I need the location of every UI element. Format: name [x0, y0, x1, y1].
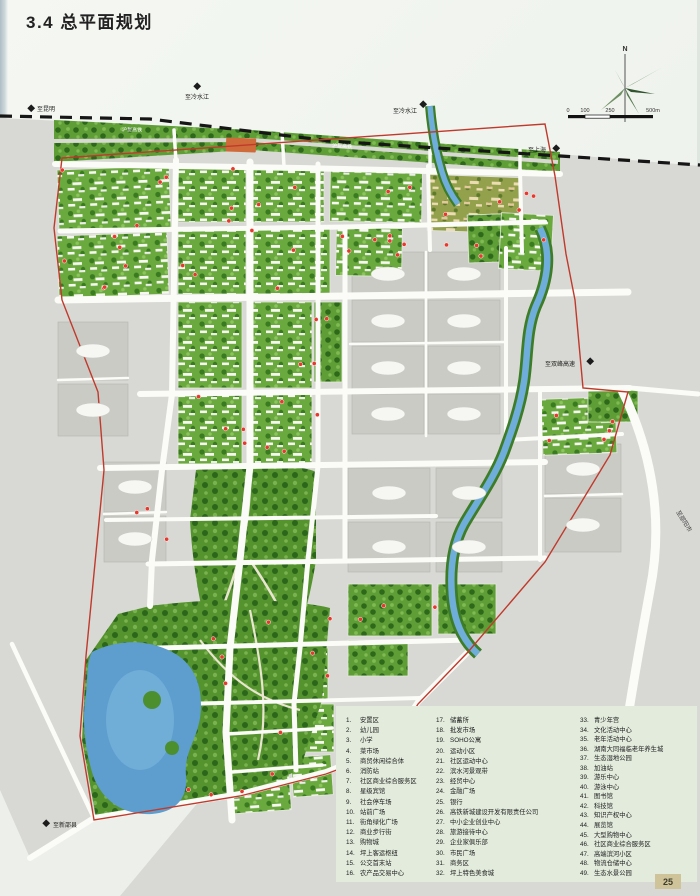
legend-item-number: 28.: [436, 828, 450, 838]
parcel-badge: [371, 361, 405, 375]
legend-item-label: 市民广场: [450, 849, 475, 859]
legend-item: 22.滨水河景观带: [436, 767, 538, 777]
legend-item-label: 高铁新城建设开发有限责任公司: [450, 808, 538, 818]
landmark-dot: [270, 772, 274, 776]
road: [282, 132, 284, 166]
legend-item-number: 15.: [346, 859, 360, 869]
legend-item-number: 12.: [346, 828, 360, 838]
legend-item-number: 13.: [346, 838, 360, 848]
legend-item-label: 老年活动中心: [594, 735, 632, 745]
scale-tick: 250: [605, 108, 614, 114]
scale-tick: 0: [566, 108, 569, 114]
railway-name-label: 沪昆高铁: [332, 142, 352, 150]
parcel-badge: [76, 344, 110, 358]
legend-item-number: 17.: [436, 716, 450, 726]
landmark-dot: [524, 191, 528, 195]
landmark-dot: [395, 253, 399, 257]
legend-item-label: 街角绿化广场: [360, 818, 398, 828]
legend-item-label: 高端滨河小区: [594, 850, 632, 860]
landmark-dot: [193, 272, 197, 276]
legend-item: 10.站前广场: [346, 808, 417, 818]
legend-item-label: 经贸中心: [450, 777, 475, 787]
legend-item-number: 9.: [346, 798, 360, 808]
residential-block: [248, 302, 312, 388]
legend-item: 45.大型购物中心: [580, 831, 663, 841]
legend-item-label: 储蓄所: [450, 716, 469, 726]
legend-item-label: 菜市场: [360, 747, 379, 757]
legend-item-number: 20.: [436, 747, 450, 757]
legend-item-number: 26.: [436, 808, 450, 818]
landmark-dot: [266, 620, 270, 624]
legend-item-label: 企业家俱乐部: [450, 838, 488, 848]
parcel-badge: [447, 407, 481, 421]
legend-item-number: 8.: [346, 787, 360, 797]
green-space-block: [348, 584, 432, 636]
legend-item: 33.青少年宫: [580, 716, 663, 726]
legend-item-label: 文化活动中心: [594, 726, 632, 736]
legend-item-number: 1.: [346, 716, 360, 726]
legend-item-number: 10.: [346, 808, 360, 818]
legend-item-label: 生态水景公园: [594, 869, 632, 879]
road: [428, 166, 430, 250]
scale-tick: 100: [580, 108, 589, 114]
legend-item-label: 加油站: [594, 764, 613, 774]
landmark-dot: [209, 793, 213, 797]
legend-item: 13.购物城: [346, 838, 417, 848]
legend-panel: 1.安置区2.幼儿园3.小学4.菜市场5.商贸休闲综合体6.消防站7.社区商业综…: [336, 706, 697, 882]
legend-item: 40.游泳中心: [580, 783, 663, 793]
document-page: 3.4 总平面规划: [0, 0, 700, 896]
residential-block: [330, 169, 423, 223]
legend-item-number: 23.: [436, 777, 450, 787]
residential-block: [252, 166, 324, 222]
parcel-badge: [452, 540, 486, 554]
legend-item-number: 40.: [580, 783, 594, 793]
legend-item-label: 批发市场: [450, 726, 475, 736]
legend-item: 38.加油站: [580, 764, 663, 774]
legend-item: 37.生态湿地公园: [580, 754, 663, 764]
landmark-dot: [293, 185, 297, 189]
landmark-dot: [554, 413, 558, 417]
landmark-dot: [388, 234, 392, 238]
landmark-dot: [186, 788, 190, 792]
landmark-dot: [443, 212, 447, 216]
parcel-badge: [372, 486, 406, 500]
legend-item: 11.街角绿化广场: [346, 818, 417, 828]
legend-item-label: 幼儿园: [360, 726, 379, 736]
legend-item-number: 48.: [580, 859, 594, 869]
landmark-dot: [314, 317, 318, 321]
landmark-dot: [265, 445, 269, 449]
legend-item-number: 45.: [580, 831, 594, 841]
legend-item-label: 农产品交易中心: [360, 869, 404, 879]
diamond-marker: [552, 144, 560, 152]
landmark-dot: [382, 604, 386, 608]
residential-block: [178, 166, 246, 222]
landmark-dot: [373, 238, 377, 242]
legend-item-number: 3.: [346, 736, 360, 746]
legend-item-number: 43.: [580, 811, 594, 821]
landmark-dot: [62, 259, 66, 263]
legend-item-label: 商务区: [450, 859, 469, 869]
to-xinshao-county-label: 至新邵县: [53, 821, 77, 829]
legend-item: 18.批发市场: [436, 726, 538, 736]
legend-item-label: 小学: [360, 736, 373, 746]
page-number: 25: [655, 874, 681, 889]
legend-item-number: 42.: [580, 802, 594, 812]
landmark-dot: [358, 617, 362, 621]
legend-item-label: 游乐中心: [594, 773, 619, 783]
legend-column-1: 1.安置区2.幼儿园3.小学4.菜市场5.商贸休闲综合体6.消防站7.社区商业综…: [346, 716, 417, 879]
landmark-dot: [164, 175, 168, 179]
legend-item: 30.市民广场: [436, 849, 538, 859]
landmark-dot: [196, 395, 200, 399]
legend-item-label: 展览馆: [594, 821, 613, 831]
legend-item: 47.高端滨河小区: [580, 850, 663, 860]
landmark-dot: [229, 206, 233, 210]
scale-tick: 500m: [646, 108, 660, 114]
landmark-dot: [542, 238, 546, 242]
landmark-dot: [547, 438, 551, 442]
legend-item: 31.商务区: [436, 859, 538, 869]
legend-item-label: 金融广场: [450, 787, 475, 797]
legend-item-number: 25.: [436, 798, 450, 808]
legend-item-label: 科技馆: [594, 802, 613, 812]
legend-item: 16.农产品交易中心: [346, 869, 417, 879]
landmark-dot: [310, 651, 314, 655]
to-lengshuijiang-label: 至冷水江: [393, 107, 417, 115]
lake-island: [143, 691, 161, 709]
landmark-dot: [325, 674, 329, 678]
legend-item-label: 生态湿地公园: [594, 754, 632, 764]
scale-bar: 0 100 250 500m: [566, 108, 660, 118]
legend-item-number: 29.: [436, 838, 450, 848]
landmark-dot: [298, 362, 302, 366]
legend-item: 23.经贸中心: [436, 777, 538, 787]
legend-item-label: 中小企业创业中心: [450, 818, 500, 828]
legend-item-number: 32.: [436, 869, 450, 879]
legend-item-label: 游泳中心: [594, 783, 619, 793]
legend-item: 46.社区商业综合服务区: [580, 840, 663, 850]
legend-item: 3.小学: [346, 736, 417, 746]
lake-highlight: [106, 670, 174, 770]
landmark-dot: [278, 730, 282, 734]
legend-item-number: 41.: [580, 792, 594, 802]
legend-item: 25.银行: [436, 798, 538, 808]
parcel-badge: [447, 267, 481, 281]
legend-item-number: 34.: [580, 726, 594, 736]
legend-item: 21.社区运动中心: [436, 757, 538, 767]
landmark-dot: [181, 263, 185, 267]
legend-item-number: 36.: [580, 745, 594, 755]
legend-item-number: 6.: [346, 767, 360, 777]
landmark-dot: [610, 419, 614, 423]
legend-item-label: 消防站: [360, 767, 379, 777]
to-kunming-label: 至昆明: [37, 106, 55, 113]
landmark-dot: [103, 285, 107, 289]
parcel-badge: [118, 480, 152, 494]
landmark-dot: [388, 239, 392, 243]
parcel-badge: [371, 267, 405, 281]
legend-item: 12.商业步行街: [346, 828, 417, 838]
legend-item-label: 知识产权中心: [594, 811, 632, 821]
legend-item-number: 35.: [580, 735, 594, 745]
landmark-dot: [257, 202, 261, 206]
legend-item-label: 安置区: [360, 716, 379, 726]
legend-item-number: 47.: [580, 850, 594, 860]
railway-name-label: 沪昆高铁: [122, 126, 142, 134]
legend-item-label: 坪上客运枢纽: [360, 849, 398, 859]
landmark-dot: [165, 537, 169, 541]
landmark-dot: [123, 264, 127, 268]
legend-item-label: 青少年宫: [594, 716, 619, 726]
parcel-badge: [447, 314, 481, 328]
landmark-dot: [340, 234, 344, 238]
parcel-badge: [76, 403, 110, 417]
landmark-dot: [408, 185, 412, 189]
parcel-badge: [447, 361, 481, 375]
landmark-dot: [60, 168, 64, 172]
legend-item-label: 银行: [450, 798, 463, 808]
legend-item: 7.社区商业综合服务区: [346, 777, 417, 787]
landmark-dot: [231, 167, 235, 171]
landmark-dot: [474, 243, 478, 247]
legend-item: 14.坪上客运枢纽: [346, 849, 417, 859]
legend-item-number: 24.: [436, 787, 450, 797]
landmark-dot: [315, 413, 319, 417]
landmark-dot: [211, 637, 215, 641]
landmark-dot: [312, 361, 316, 365]
legend-item-number: 14.: [346, 849, 360, 859]
landmark-dot: [531, 194, 535, 198]
legend-item-label: 商贸休闲综合体: [360, 757, 404, 767]
legend-item-number: 21.: [436, 757, 450, 767]
legend-item-label: 物流仓储中心: [594, 859, 632, 869]
legend-item-label: 图书馆: [594, 792, 613, 802]
lake-island: [165, 741, 179, 755]
landmark-dot: [145, 507, 149, 511]
legend-item: 32.坪上特色美食城: [436, 869, 538, 879]
legend-item-number: 33.: [580, 716, 594, 726]
legend-item-label: 购物城: [360, 838, 379, 848]
parcel-badge: [118, 532, 152, 546]
legend-item-number: 38.: [580, 764, 594, 774]
landmark-dot: [325, 317, 329, 321]
green-space-block: [348, 640, 408, 676]
landmark-dot: [498, 200, 502, 204]
residential-block: [248, 394, 312, 464]
landmark-dot: [112, 234, 116, 238]
legend-item: 8.星级宾馆: [346, 787, 417, 797]
legend-item-number: 16.: [346, 869, 360, 879]
legend-item-number: 2.: [346, 726, 360, 736]
legend-item-label: 公交首末站: [360, 859, 391, 869]
compass-north-label: N: [622, 46, 627, 53]
to-shuangfeng-expressway-label: 至双峰高速: [545, 360, 575, 368]
legend-item: 41.图书馆: [580, 792, 663, 802]
landmark-dot: [275, 286, 279, 290]
legend-item-number: 19.: [436, 736, 450, 746]
legend-item: 17.储蓄所: [436, 716, 538, 726]
legend-item: 6.消防站: [346, 767, 417, 777]
diamond-marker: [27, 104, 35, 112]
parcel-badge: [452, 486, 486, 500]
parcel-badge: [371, 407, 405, 421]
legend-item: 5.商贸休闲综合体: [346, 757, 417, 767]
legend-item-label: 湖南大同福临老年养生城: [594, 745, 663, 755]
residential-block: [178, 302, 242, 388]
legend-item: 26.高铁新城建设开发有限责任公司: [436, 808, 538, 818]
landmark-dot: [607, 429, 611, 433]
landmark-dot: [479, 254, 483, 258]
legend-item-number: 44.: [580, 821, 594, 831]
legend-item-number: 22.: [436, 767, 450, 777]
legend-item: 35.老年活动中心: [580, 735, 663, 745]
legend-item-label: 运动小区: [450, 747, 475, 757]
to-lengshuijiang-label: 至冷水江: [185, 93, 209, 101]
legend-item-label: 社区商业综合服务区: [360, 777, 417, 787]
legend-item-label: 社会停车场: [360, 798, 391, 808]
residential-block: [178, 394, 242, 464]
legend-item: 28.旅游接待中心: [436, 828, 538, 838]
landmark-dot: [402, 242, 406, 246]
legend-item: 39.游乐中心: [580, 773, 663, 783]
legend-item-number: 7.: [346, 777, 360, 787]
landmark-dot: [517, 208, 521, 212]
landmark-dot: [220, 655, 224, 659]
legend-item-label: 社区运动中心: [450, 757, 488, 767]
legend-item-number: 46.: [580, 840, 594, 850]
legend-item: 27.中小企业创业中心: [436, 818, 538, 828]
landmark-dot: [282, 449, 286, 453]
legend-item: 2.幼儿园: [346, 726, 417, 736]
legend-item-number: 37.: [580, 754, 594, 764]
to-shanghai-label: 至上海: [528, 146, 546, 154]
landmark-dot: [243, 441, 247, 445]
landmark-dot: [328, 617, 332, 621]
residential-block: [178, 228, 246, 294]
landmark-dot: [291, 248, 295, 252]
legend-item-number: 49.: [580, 869, 594, 879]
diamond-marker: [193, 82, 201, 90]
legend-item-number: 18.: [436, 726, 450, 736]
legend-item: 44.展览馆: [580, 821, 663, 831]
legend-item: 4.菜市场: [346, 747, 417, 757]
landmark-dot: [444, 243, 448, 247]
landmark-dot: [118, 245, 122, 249]
legend-item-number: 27.: [436, 818, 450, 828]
parcel-badge: [566, 518, 600, 532]
landmark-dot: [224, 427, 228, 431]
landmark-dot: [386, 189, 390, 193]
legend-item: 43.知识产权中心: [580, 811, 663, 821]
legend-item-number: 4.: [346, 747, 360, 757]
legend-item: 24.金融广场: [436, 787, 538, 797]
legend-column-2: 17.储蓄所18.批发市场19.SOHO公寓20.运动小区21.社区运动中心22…: [436, 716, 538, 879]
lake: [84, 642, 201, 814]
legend-item: 20.运动小区: [436, 747, 538, 757]
landmark-dot: [280, 400, 284, 404]
parcel-badge: [372, 540, 406, 554]
legend-item-label: 星级宾馆: [360, 787, 385, 797]
landmark-dot: [241, 427, 245, 431]
parcel-badge: [371, 314, 405, 328]
residential-block: [57, 232, 169, 298]
legend-item: 36.湖南大同福临老年养生城: [580, 745, 663, 755]
legend-item-number: 5.: [346, 757, 360, 767]
legend-item: 34.文化活动中心: [580, 726, 663, 736]
legend-item-number: 31.: [436, 859, 450, 869]
legend-item-label: 站前广场: [360, 808, 385, 818]
legend-item-label: 大型购物中心: [594, 831, 632, 841]
landmark-dot: [602, 437, 606, 441]
landmark-dot: [223, 681, 227, 685]
legend-item: 48.物流仓储中心: [580, 859, 663, 869]
landmark-dot: [250, 228, 254, 232]
legend-item: 15.公交首末站: [346, 859, 417, 869]
legend-item-label: 坪上特色美食城: [450, 869, 494, 879]
legend-item: 42.科技馆: [580, 802, 663, 812]
landmark-dot: [433, 605, 437, 609]
legend-item-number: 11.: [346, 818, 360, 828]
legend-item-label: 旅游接待中心: [450, 828, 488, 838]
landmark-dot: [227, 219, 231, 223]
parcel-badge: [566, 462, 600, 476]
legend-item-label: 社区商业综合服务区: [594, 840, 651, 850]
landmark-dot: [135, 223, 139, 227]
landmark-dot: [347, 249, 351, 253]
legend-item-label: SOHO公寓: [450, 736, 481, 746]
landmark-dot: [240, 789, 244, 793]
legend-item: 1.安置区: [346, 716, 417, 726]
legend-item-number: 30.: [436, 849, 450, 859]
legend-column-3: 33.青少年宫34.文化活动中心35.老年活动中心36.湖南大同福临老年养生城3…: [580, 716, 663, 878]
road: [174, 130, 176, 162]
legend-item-number: 39.: [580, 773, 594, 783]
legend-item: 29.企业家俱乐部: [436, 838, 538, 848]
legend-item-label: 商业步行街: [360, 828, 391, 838]
landmark-dot: [135, 510, 139, 514]
landmark-dot: [158, 180, 162, 184]
legend-item: 49.生态水景公园: [580, 869, 663, 879]
residential-block: [57, 166, 171, 232]
legend-item-label: 滨水河景观带: [450, 767, 488, 777]
legend-item: 19.SOHO公寓: [436, 736, 538, 746]
legend-item: 9.社会停车场: [346, 798, 417, 808]
